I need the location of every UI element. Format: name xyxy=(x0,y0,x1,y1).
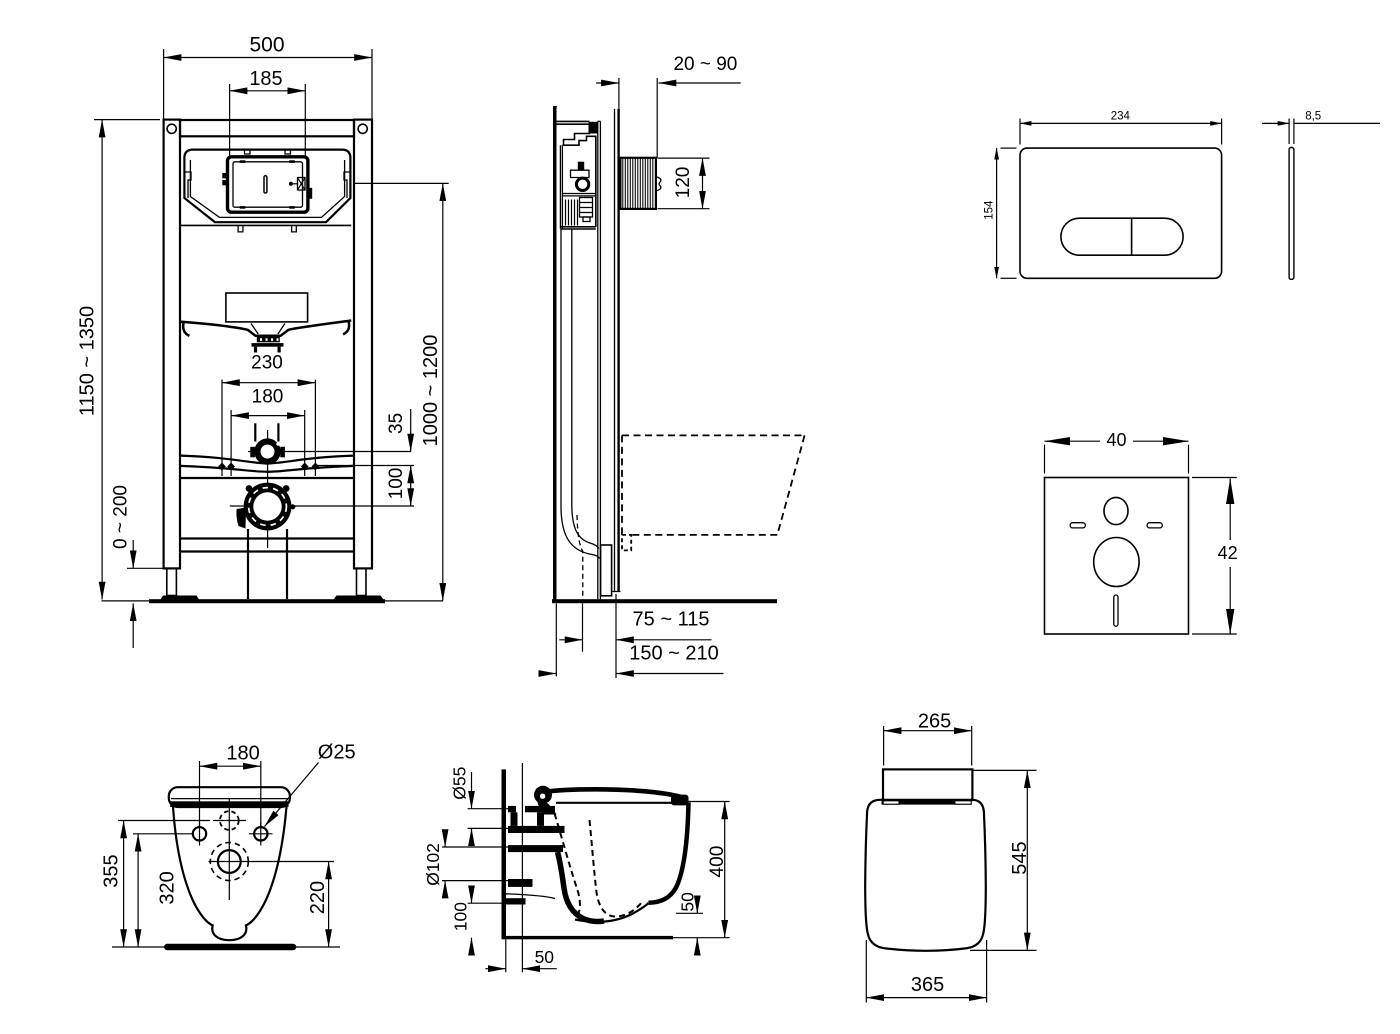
svg-text:1000 ~ 1200: 1000 ~ 1200 xyxy=(420,335,442,447)
svg-text:100: 100 xyxy=(451,902,471,931)
svg-text:20 ~ 90: 20 ~ 90 xyxy=(673,54,737,75)
svg-text:220: 220 xyxy=(307,881,329,914)
svg-text:120: 120 xyxy=(673,167,694,199)
svg-text:Ø25: Ø25 xyxy=(318,742,356,764)
svg-text:50: 50 xyxy=(678,892,698,912)
svg-text:50: 50 xyxy=(535,947,555,967)
svg-text:355: 355 xyxy=(101,854,123,887)
svg-text:0 ~ 200: 0 ~ 200 xyxy=(110,485,131,549)
svg-text:320: 320 xyxy=(156,871,178,904)
svg-text:35: 35 xyxy=(386,413,407,434)
svg-text:Ø102: Ø102 xyxy=(423,843,443,886)
svg-text:42: 42 xyxy=(1218,543,1238,563)
svg-text:Ø55: Ø55 xyxy=(449,767,469,800)
svg-text:500: 500 xyxy=(249,34,284,57)
svg-text:40: 40 xyxy=(1106,430,1126,450)
svg-text:180: 180 xyxy=(252,386,284,407)
svg-text:365: 365 xyxy=(911,974,944,996)
svg-text:230: 230 xyxy=(251,353,283,374)
svg-text:154: 154 xyxy=(984,200,996,220)
svg-text:180: 180 xyxy=(226,743,259,765)
svg-text:150 ~ 210: 150 ~ 210 xyxy=(629,642,719,664)
svg-text:265: 265 xyxy=(918,711,951,733)
svg-text:1150 ~ 1350: 1150 ~ 1350 xyxy=(77,306,99,416)
svg-text:75 ~ 115: 75 ~ 115 xyxy=(633,609,710,631)
svg-text:185: 185 xyxy=(249,68,282,90)
svg-text:8,5: 8,5 xyxy=(1305,111,1321,123)
svg-text:100: 100 xyxy=(386,468,407,500)
svg-text:234: 234 xyxy=(1111,111,1131,123)
